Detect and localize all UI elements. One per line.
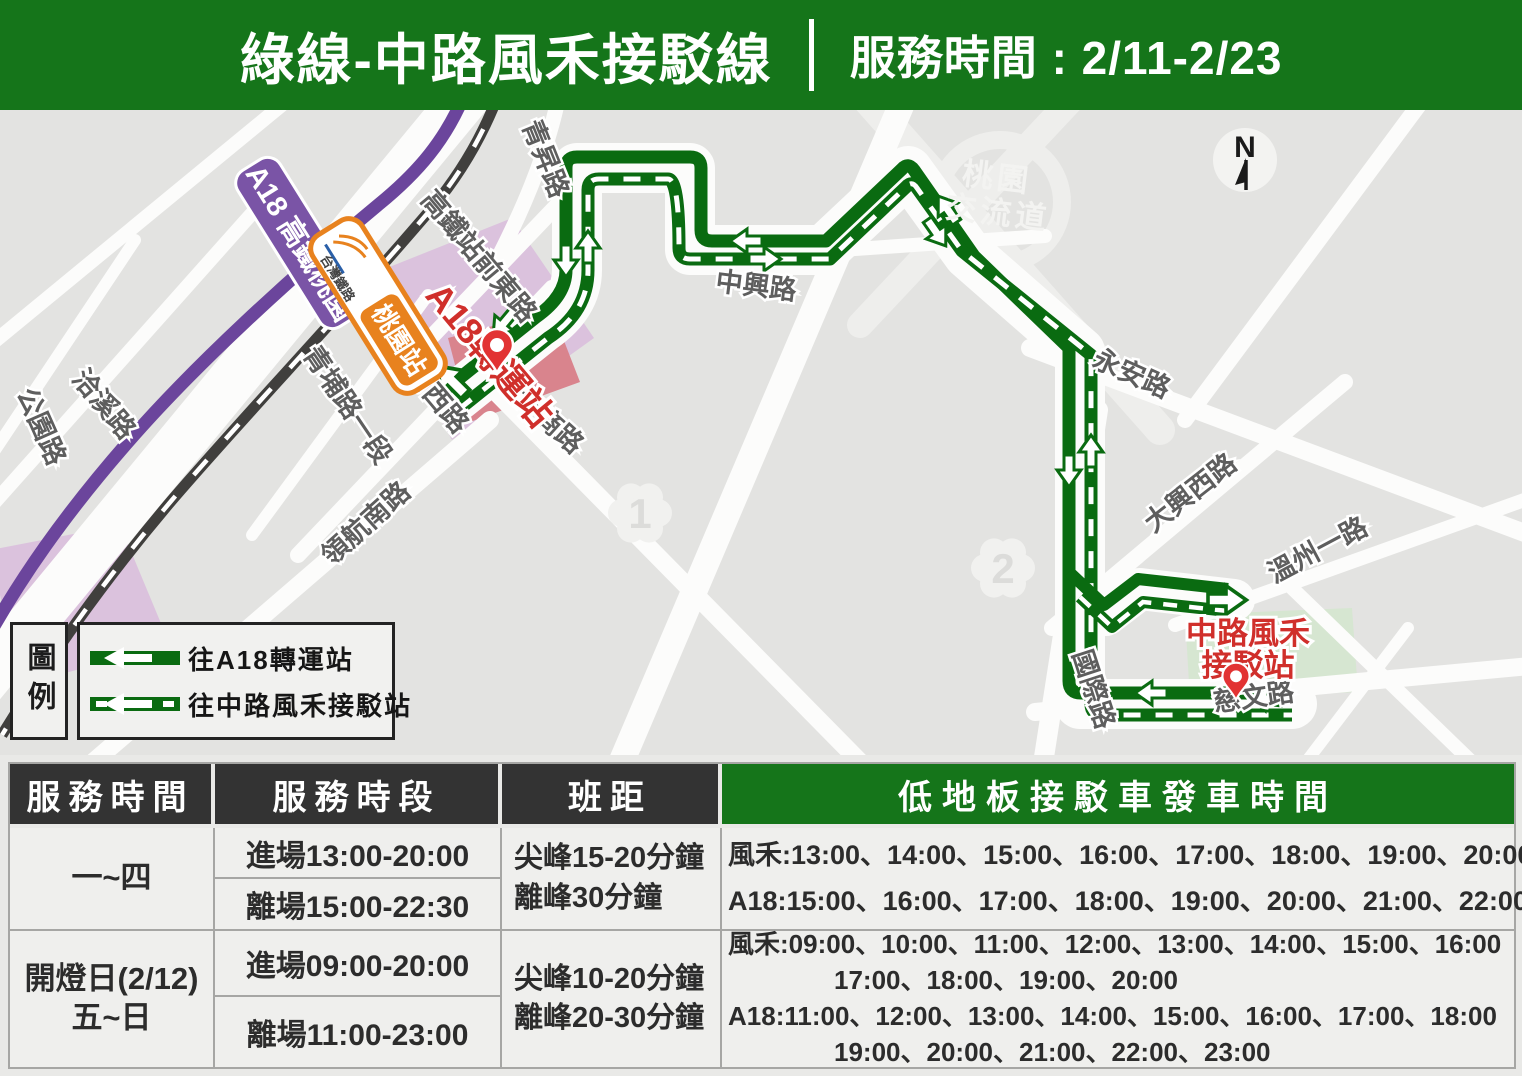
page-title: 綠線-中路風禾接駁線 xyxy=(239,15,772,95)
col-header-departures: 低地板接駁車發車時間 xyxy=(722,764,1514,828)
legend-items-box: 往A18轉運站 往中路風禾接駁站 xyxy=(77,622,395,740)
flower-number: 1 xyxy=(628,490,651,537)
legend-dashed-line-icon xyxy=(90,691,180,717)
col-header-session: 服務時段 xyxy=(215,764,502,828)
legend-title-box: 圖例 xyxy=(10,622,68,740)
departure-line: 17:00、18:00、19:00、20:00 xyxy=(728,964,1178,998)
session-cell: 進場09:00-20:00 xyxy=(215,931,502,997)
service-period: 服務時間 : 2/11-2/23 xyxy=(850,22,1283,88)
headway-line: 離峰30分鐘 xyxy=(514,879,662,918)
map-legend: 圖例 往A18轉運站 往中路風禾接駁站 xyxy=(10,622,395,740)
departure-line: A18:11:00、12:00、13:00、14:00、15:00、16:00、… xyxy=(728,1000,1497,1034)
page-header: 綠線-中路風禾接駁線 服務時間 : 2/11-2/23 xyxy=(0,0,1522,110)
period-line: 五~日 xyxy=(71,999,151,1038)
bottom-panel: 服務時間 服務時段 班距 低地板接駁車發車時間 一~四 進場13:00-20:0… xyxy=(0,755,1522,1076)
departure-line: 19:00、20:00、21:00、22:00、23:00 xyxy=(728,1036,1271,1070)
headway-line: 離峰20-30分鐘 xyxy=(514,999,704,1038)
session-cell: 離場11:00-23:00 xyxy=(215,997,502,1067)
schedule-table: 服務時間 服務時段 班距 低地板接駁車發車時間 一~四 進場13:00-20:0… xyxy=(8,762,1516,1069)
col-header-service-time: 服務時間 xyxy=(10,764,215,828)
headway-cell: 尖峰10-20分鐘 離峰20-30分鐘 xyxy=(502,931,722,1067)
departures-cell: 風禾:13:00、14:00、15:00、16:00、17:00、18:00、1… xyxy=(722,828,1514,931)
legend-item-label: 往中路風禾接駁站 xyxy=(188,686,412,723)
header-divider xyxy=(809,19,814,91)
headway-line: 尖峰10-20分鐘 xyxy=(514,960,704,999)
period-line: 一~四 xyxy=(71,859,151,898)
headway-line: 尖峰15-20分鐘 xyxy=(514,839,704,878)
departures-cell: 風禾:09:00、10:00、11:00、12:00、13:00、14:00、1… xyxy=(722,931,1514,1067)
legend-item-a18: 往A18轉運站 xyxy=(90,640,392,677)
compass-north-label: N xyxy=(1234,131,1256,164)
legend-solid-line-icon xyxy=(90,645,180,671)
flower-number: 2 xyxy=(991,545,1014,592)
svg-text:中路風禾: 中路風禾 xyxy=(1186,616,1310,651)
legend-item-label: 往A18轉運站 xyxy=(188,640,354,677)
departure-line: 風禾:09:00、10:00、11:00、12:00、13:00、14:00、1… xyxy=(728,928,1501,962)
departure-line: A18:15:00、16:00、17:00、18:00、19:00、20:00、… xyxy=(728,884,1522,919)
period-cell: 開燈日(2/12) 五~日 xyxy=(10,931,215,1067)
headway-cell: 尖峰15-20分鐘 離峰30分鐘 xyxy=(502,828,722,931)
departure-line: 風禾:13:00、14:00、15:00、16:00、17:00、18:00、1… xyxy=(728,838,1522,873)
col-header-headway: 班距 xyxy=(502,764,722,828)
period-line: 開燈日(2/12) xyxy=(25,960,199,999)
legend-title: 圖例 xyxy=(18,642,60,720)
legend-item-fenghe: 往中路風禾接駁站 xyxy=(90,686,392,723)
session-cell: 離場15:00-22:30 xyxy=(215,879,502,931)
session-cell: 進場13:00-20:00 xyxy=(215,828,502,879)
period-cell: 一~四 xyxy=(10,828,215,931)
route-map: 1 2 桃園 交流道 青昇路 高鐵站前東路 高鐵站前西路 青埔路一段 公園路 洽… xyxy=(0,110,1522,755)
compass: N xyxy=(1213,128,1277,192)
